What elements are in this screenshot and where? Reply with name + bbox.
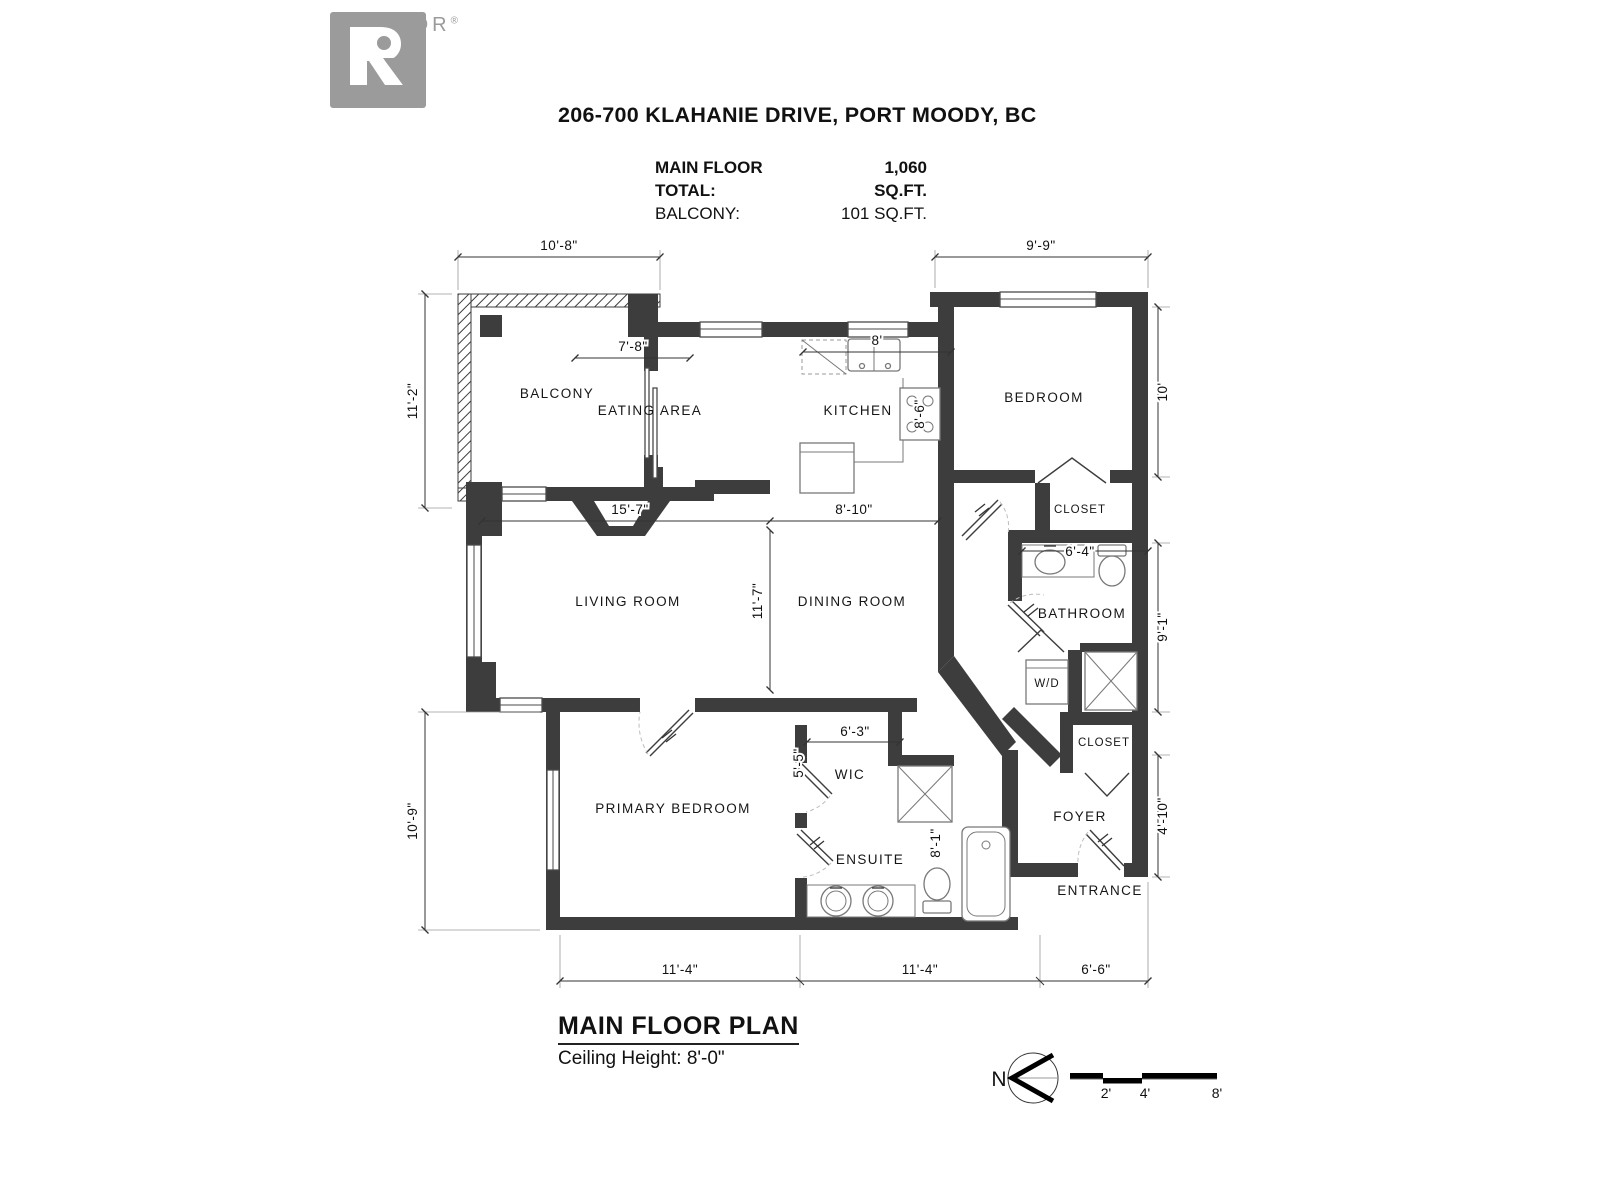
dim-bottom-mid: 11'-4" [902, 962, 938, 977]
dim-living-width: 15'-7" [611, 502, 648, 517]
dim-dining-width: 8'-10" [835, 502, 872, 517]
dim-ensuite-height: 8'-1" [928, 828, 943, 857]
dim-primary-height: 10'-9" [405, 802, 420, 839]
kitchen-counter [852, 378, 903, 462]
label-ensuite: ENSUITE [836, 852, 904, 867]
wd-closet-door [1018, 630, 1064, 652]
dim-wic-height: 5'-5" [791, 748, 806, 777]
floor-plan-page: REALTOR® 206-700 KLAHANIE DRIVE, PORT MO… [0, 0, 1600, 1200]
dim-balcony-height: 11'-2" [405, 383, 420, 419]
hall-door [962, 500, 1009, 540]
north-label: N [991, 1068, 1006, 1091]
dishwasher-icon [802, 340, 846, 374]
plan-title: MAIN FLOOR PLAN [558, 1012, 799, 1045]
ensuite-toilet-icon [923, 868, 951, 913]
scale-8ft: 8' [1212, 1085, 1222, 1101]
scale-bar: 2' 4' 8' [1070, 1073, 1222, 1101]
label-entrance: ENTRANCE [1057, 883, 1142, 898]
dim-living-height: 11'-7" [750, 583, 765, 619]
dim-bottom-left: 11'-4" [662, 962, 698, 977]
dim-eating-width: 7'-8" [618, 339, 647, 354]
entry-door [1078, 830, 1124, 870]
label-foyer: FOYER [1053, 809, 1107, 824]
ensuite-vanity-icon [807, 885, 915, 917]
label-primary-bedroom: PRIMARY BEDROOM [595, 801, 751, 816]
dim-bedroom-width: 9'-9" [1026, 238, 1055, 253]
label-balcony: BALCONY [520, 386, 594, 401]
scale-2ft: 2' [1101, 1085, 1111, 1101]
label-kitchen: KITCHEN [823, 403, 892, 418]
shower-icon [898, 766, 952, 822]
label-foyer-closet: CLOSET [1078, 737, 1130, 749]
floor-plan-drawing: 10'-8" 9'-9" 11'-2" 7'-8" 8' 8'-6" 10' 1… [0, 0, 1600, 1200]
dim-kitchen-height: 8'-6" [912, 399, 927, 428]
bathtub-icon [962, 827, 1010, 921]
label-bedroom: BEDROOM [1004, 390, 1084, 405]
dim-wic-width: 6'-3" [840, 724, 869, 739]
dim-bottom-right: 6'-6" [1081, 962, 1110, 977]
label-bedroom-closet: CLOSET [1054, 504, 1106, 516]
shaft-icon [1085, 652, 1137, 710]
plan-footer: MAIN FLOOR PLAN Ceiling Height: 8'-0" [558, 1012, 799, 1070]
dim-bedroom-height: 10' [1155, 382, 1170, 401]
dim-foyer-height: 4'-10" [1155, 797, 1170, 834]
label-living-room: LIVING ROOM [575, 594, 680, 609]
dim-balcony-width: 10'-8" [540, 238, 577, 253]
label-wic: WIC [835, 767, 865, 782]
windows [467, 292, 1096, 870]
ceiling-height: Ceiling Height: 8'-0" [558, 1045, 799, 1070]
ensuite-door [797, 830, 833, 877]
dim-bathroom-height: 9'-1" [1155, 612, 1170, 641]
label-eating-area: EATING AREA [598, 403, 702, 418]
scale-4ft: 4' [1140, 1085, 1150, 1101]
label-wd: W/D [1034, 678, 1059, 690]
north-arrow-icon: N [991, 1053, 1058, 1103]
dim-kitchen-width: 8' [871, 333, 882, 348]
label-bathroom: BATHROOM [1038, 606, 1126, 621]
foyer-closet-door [1085, 773, 1129, 796]
label-dining-room: DINING ROOM [798, 594, 906, 609]
bedroom-closet-door [1038, 458, 1106, 483]
primary-bedroom-door [639, 710, 693, 756]
dim-bathroom-width: 6'-4" [1065, 544, 1094, 559]
fridge-icon [800, 443, 854, 493]
